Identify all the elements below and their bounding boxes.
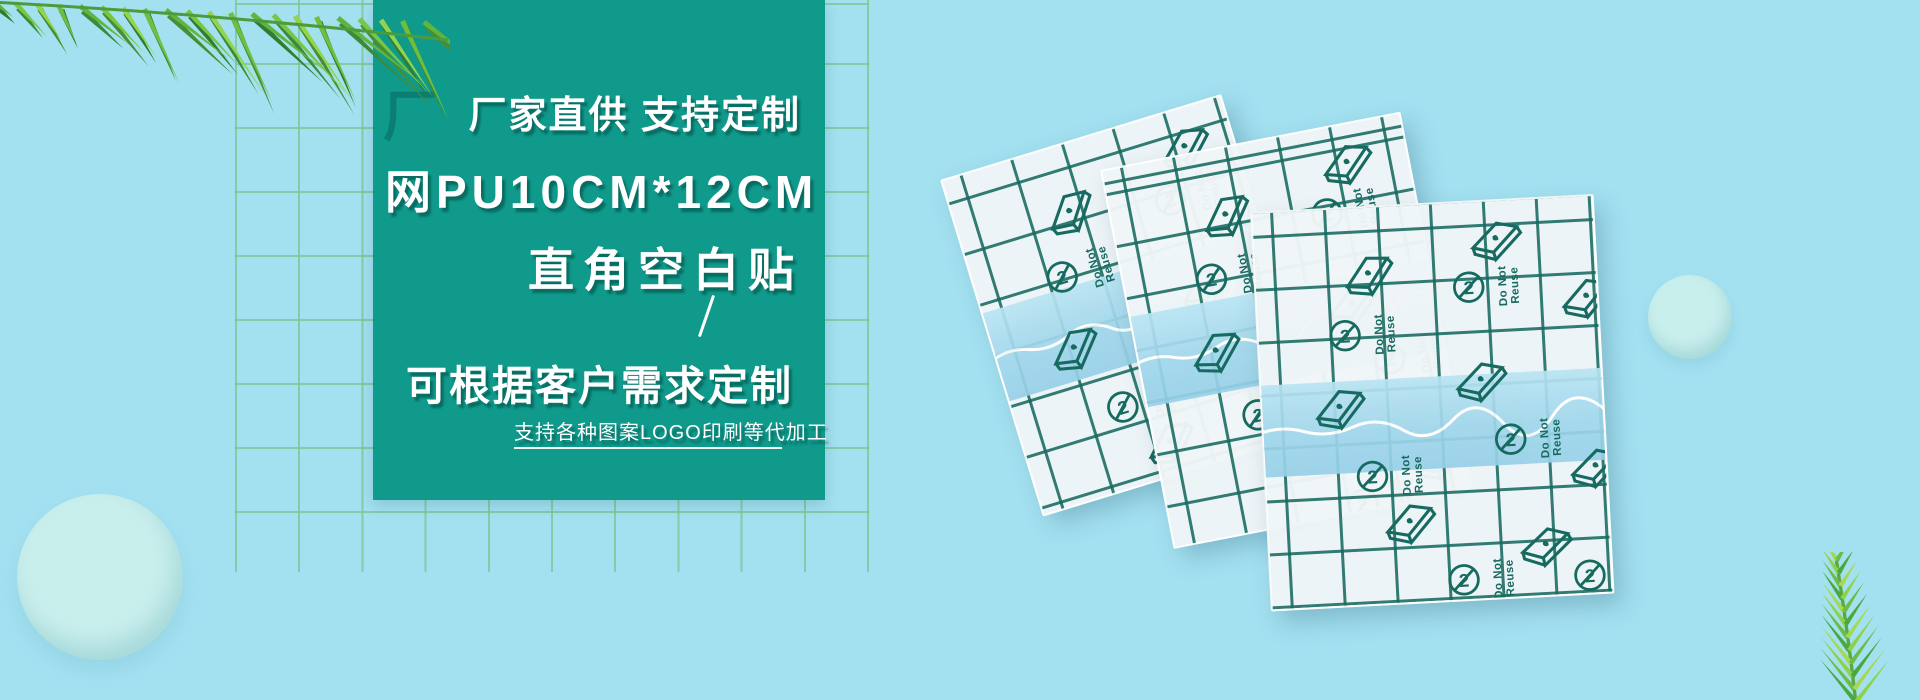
panel-custom-line: 可根据客户需求定制 xyxy=(406,352,793,412)
banner: 厂 厂家直供 支持定制 网PU10CM*12CM 直角空白贴 可根据客户需求定制… xyxy=(0,0,1920,700)
do-not-reuse-icon: Do NotReuse xyxy=(1571,553,1615,594)
document-icon xyxy=(1332,242,1410,315)
do-not-reuse-icon: Do NotReuse xyxy=(1445,558,1528,599)
do-not-reuse-icon: Do NotReuse xyxy=(1449,265,1532,306)
document-icon xyxy=(1445,352,1519,419)
do-not-reuse-icon: Do NotReuse xyxy=(1039,241,1127,300)
product-patch-3: Do NotReuse Do NotReuse Do NotReuse Do N… xyxy=(1250,194,1614,611)
do-not-reuse-icon: Do NotReuse xyxy=(1353,455,1436,496)
document-icon xyxy=(1303,377,1380,447)
document-icon xyxy=(1038,314,1118,391)
palm-leaf-icon xyxy=(0,0,450,135)
panel-sub-line: 支持各种图案LOGO印刷等代加工 xyxy=(514,416,828,445)
patch-print-icons: Do NotReuse Do NotReuse Do NotReuse Do N… xyxy=(1252,196,1612,609)
bubble-large xyxy=(17,494,183,660)
panel-product-size: 网PU10CM*12CM xyxy=(385,156,818,222)
palm-leaf-icon xyxy=(1768,552,1920,700)
do-not-reuse-icon: Do NotReuse xyxy=(1326,314,1409,355)
slash-divider xyxy=(698,295,715,338)
panel-product-name: 直角空白贴 xyxy=(528,234,803,300)
document-icon xyxy=(1550,267,1614,336)
sub-line-underline xyxy=(514,447,782,449)
panel-tagline: 厂家直供 支持定制 xyxy=(468,84,801,139)
bubble-small xyxy=(1648,275,1732,359)
document-icon xyxy=(1179,318,1258,393)
do-not-reuse-icon: Do NotReuse xyxy=(1491,417,1574,458)
document-icon xyxy=(1374,493,1450,562)
